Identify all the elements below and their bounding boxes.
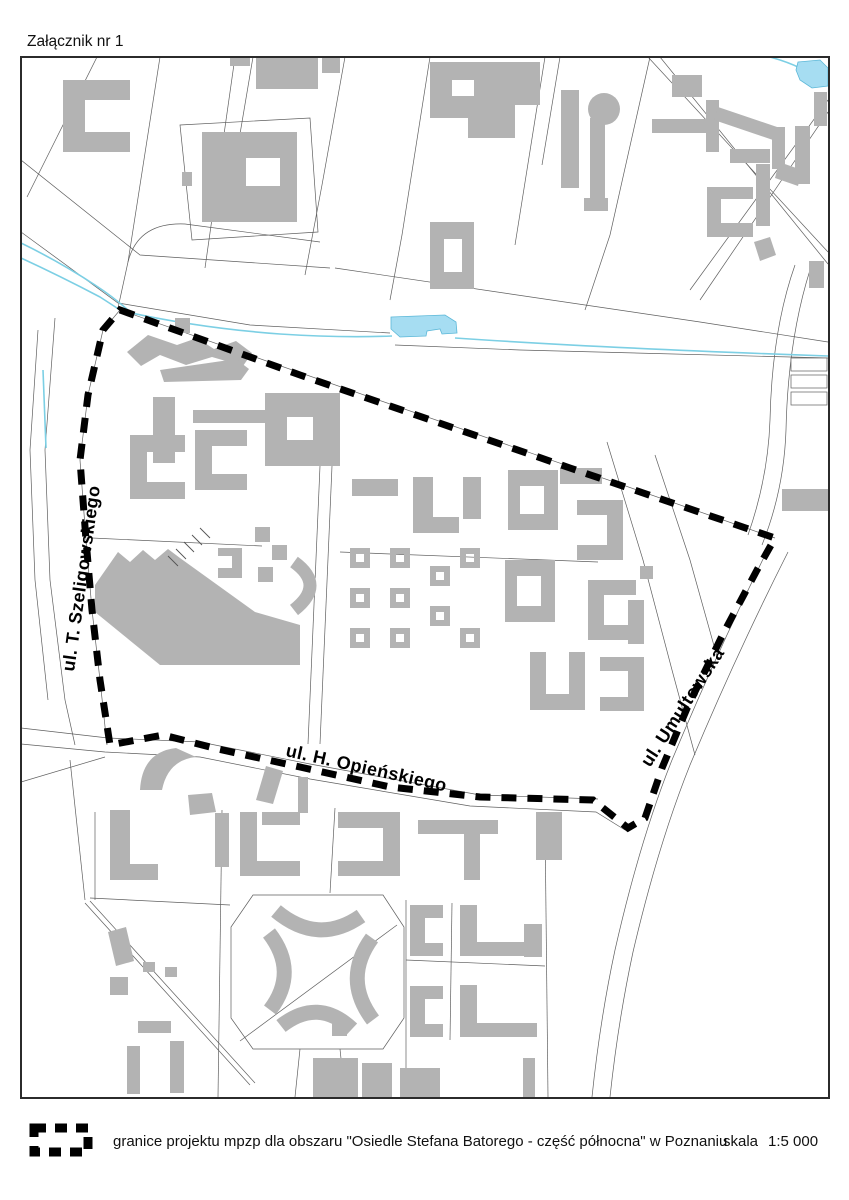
attachment-label: Załącznik nr 1 — [27, 33, 123, 50]
building — [584, 198, 608, 211]
building — [165, 967, 177, 977]
octagon-block-outline — [231, 895, 404, 1049]
building — [730, 149, 770, 163]
building — [590, 118, 605, 206]
building — [193, 410, 281, 423]
legend-scale-value: 1:5 000 — [768, 1133, 818, 1150]
building — [258, 567, 273, 582]
building — [536, 812, 562, 860]
page: { "page": { "attachment_label": "Załączn… — [0, 0, 849, 1200]
building — [782, 489, 828, 511]
building — [352, 479, 398, 496]
building — [561, 90, 579, 188]
building — [256, 57, 318, 89]
pond — [391, 315, 457, 337]
building — [138, 1021, 171, 1033]
building — [362, 1063, 392, 1097]
building — [400, 1068, 440, 1097]
map-canvas: ul. T. Szeligowskiego ul. H. Opieńskiego… — [21, 57, 829, 1098]
building — [814, 92, 827, 126]
building — [110, 977, 128, 995]
building — [127, 1046, 140, 1094]
building — [170, 1041, 184, 1093]
building — [272, 545, 287, 560]
legend: granice projektu mpzp dla obszaru "Osied… — [34, 1128, 818, 1152]
building — [313, 1058, 358, 1097]
building — [298, 777, 308, 813]
building — [322, 57, 340, 73]
building — [255, 527, 270, 542]
building — [756, 164, 770, 226]
building — [809, 261, 824, 288]
building — [628, 600, 644, 644]
legend-description: granice projektu mpzp dla obszaru "Osied… — [113, 1133, 727, 1150]
map-document: Załącznik nr 1 — [0, 0, 849, 1200]
building — [215, 813, 229, 867]
building — [672, 75, 702, 97]
legend-boundary-symbol — [34, 1128, 88, 1152]
building — [463, 477, 481, 519]
building — [588, 93, 620, 125]
legend-scale-label: skala — [723, 1133, 759, 1150]
building — [706, 100, 719, 152]
building — [230, 57, 250, 66]
building — [182, 172, 192, 186]
building — [262, 812, 300, 825]
building — [153, 397, 175, 463]
building — [143, 962, 155, 972]
building — [640, 566, 653, 579]
building — [524, 924, 542, 957]
building — [772, 127, 785, 169]
building — [523, 1058, 535, 1097]
building — [188, 793, 216, 815]
